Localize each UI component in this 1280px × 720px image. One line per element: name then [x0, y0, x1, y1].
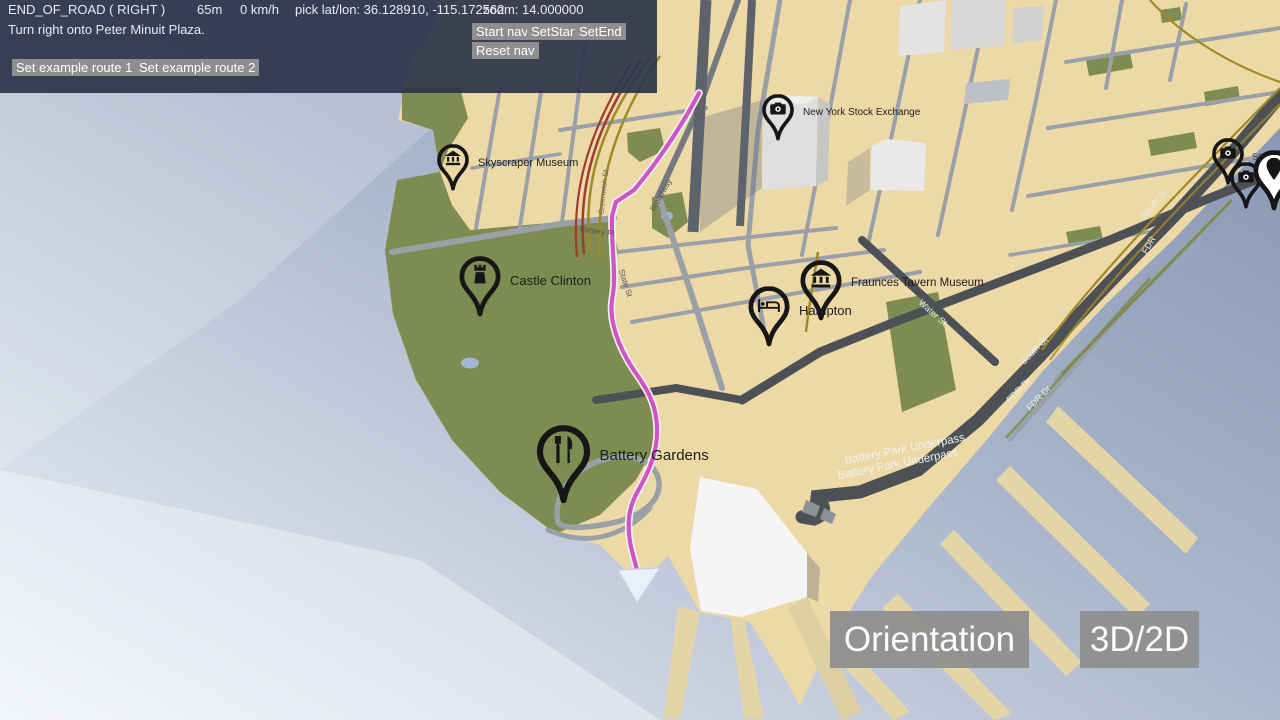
zoom-level-text: zoom: 14.000000 [483, 2, 583, 17]
example-route-2-button[interactable]: Set example route 2 [135, 59, 259, 76]
poi-castle-clinton[interactable]: Castle Clinton [458, 255, 502, 318]
3d-2d-toggle-button[interactable]: 3D/2D [1080, 611, 1199, 668]
poi-label: Skyscraper Museum [478, 157, 578, 169]
reset-nav-button[interactable]: Reset nav [472, 42, 539, 59]
poi-label: Fraunces Tavern Museum [851, 277, 984, 289]
poi-hampton[interactable]: Hampton [747, 285, 791, 348]
map-stage: Battery Park UnderpassBattery Park Under… [0, 0, 1280, 720]
museum-icon [436, 143, 470, 192]
poi-skyscraper-museum[interactable]: Skyscraper Museum [436, 143, 470, 192]
poi-pin[interactable] [1252, 149, 1280, 212]
distance-text: 65m [197, 2, 222, 17]
camera-icon [761, 93, 795, 142]
poi-new-york-stock-exchange[interactable]: New York Stock Exchange [761, 93, 795, 142]
speed-text: 0 km/h [240, 2, 279, 17]
poi-label: Castle Clinton [510, 273, 591, 288]
orientation-button[interactable]: Orientation [830, 611, 1029, 668]
pin-icon [1252, 149, 1280, 212]
set-start-button[interactable]: SetStart [527, 23, 582, 40]
castle-icon [458, 255, 502, 318]
maneuver-text: END_OF_ROAD ( RIGHT ) [8, 2, 165, 17]
poi-label: Hampton [799, 303, 852, 318]
hotel-icon [747, 285, 791, 348]
set-end-button[interactable]: SetEnd [575, 23, 626, 40]
poi-label: Battery Gardens [600, 447, 709, 464]
nav-hud-panel: END_OF_ROAD ( RIGHT ) 65m 0 km/h pick la… [0, 0, 657, 93]
instruction-text: Turn right onto Peter Minuit Plaza. [8, 22, 205, 37]
pond [461, 358, 479, 369]
example-route-1-button[interactable]: Set example route 1 [12, 59, 136, 76]
poi-label: New York Stock Exchange [803, 107, 920, 118]
poi-battery-gardens[interactable]: Battery Gardens [535, 424, 592, 505]
restaurant-icon [535, 424, 592, 505]
pick-latlon-text: pick lat/lon: 36.128910, -115.172562 [295, 2, 504, 17]
start-nav-button[interactable]: Start nav [472, 23, 532, 40]
